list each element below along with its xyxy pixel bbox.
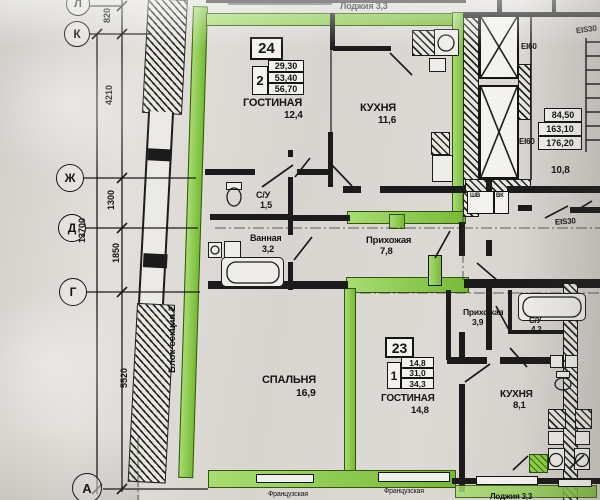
wall-block [148,148,173,161]
kitchen24-appliance [429,58,446,72]
kitchen-adj-cabinet [575,431,590,445]
axis-label: Л [74,0,82,10]
kitchen24-name: КУХНЯ [360,103,396,114]
wall-stub [497,0,502,15]
kitchen24-sink-box [434,29,459,56]
apt23-top-wall [464,279,600,288]
kitchen-bottom-wall [380,186,465,193]
shadow-overlay-bottom-left [0,430,140,500]
living23-name: ГОСТИНАЯ [381,394,435,404]
bath-block-wall [288,177,293,235]
apt23-number: 23 [392,340,408,356]
corridor-wall [486,240,492,256]
bath-block-wall [288,150,293,157]
dim-820: 820 [103,8,112,23]
kitchen23-wall-seg [459,332,465,360]
living24-right-wall [328,132,333,187]
entrance-door-24 [428,255,442,286]
wc24-area: 1,5 [260,201,272,210]
wc-bath-divider [210,214,290,220]
wc23-sink [565,355,578,368]
light-overlay-left2 [0,290,130,440]
hall24-right-wall [459,222,465,256]
kitchen24-area: 11,6 [378,116,396,126]
hall24-area: 7,8 [380,247,393,257]
bath23-left-wall [508,290,512,332]
table-value-1: 84,50 [552,110,575,120]
living23-area: 14,8 [411,406,429,416]
apt23-rooms-cell: 1 [387,362,401,389]
dimension-ticks [92,1,127,494]
kitchen24-counter-icon [412,30,436,56]
bathtub24-icon [221,257,284,287]
apt24-number-box: 24 [250,37,283,60]
kitchen23-living-wall [459,384,465,492]
table-row-2: 163,10 [538,122,582,136]
bath24-area: 3,2 [262,245,274,254]
vk-label: ВК [496,193,504,199]
kitchen24-cabinet [432,155,453,182]
room-name: Лоджия [340,1,373,11]
window-band [138,111,174,304]
block-section-label: Блок-секция 2 [168,306,178,373]
wc24-top-wall [205,169,255,175]
living24-name: ГОСТИНАЯ [243,98,302,109]
bath24-name: Ванная [250,234,281,243]
room-area: 3,3 [522,492,533,500]
elevator-shaft-1 [479,15,519,79]
lobby-area: 10,8 [551,166,570,176]
wc23-area: 4,2 [531,326,542,334]
french-window [256,474,314,483]
window [558,479,592,487]
axis-bubble-g: Г [59,278,87,306]
wall-block [143,253,168,268]
dim-4210: 4210 [105,85,114,105]
kitchen23-area: 8,1 [513,401,526,411]
elevator-shaft-2 [479,85,519,179]
kitchen23-stove-icon [548,409,566,429]
lobby-wall-seg [518,205,532,211]
wc23-name: С/У [529,317,541,325]
building-top-edge [206,0,466,3]
green-hatch-box [529,454,548,473]
apt24-area-total-cell: 53,40 [268,72,304,83]
dim-5520: 5520 [120,368,129,388]
apt24-area-full-cell: 56,70 [268,83,304,95]
axis-label: Д [68,221,77,235]
table-row-1: 84,50 [544,108,582,122]
ei60-label-2: EI60 [519,138,535,146]
axis-bubble-k: К [64,21,90,47]
kitchen-wall-stub [333,46,391,51]
hall24-name: Прихожая [366,236,411,246]
kitchen-bottom-seg [343,186,361,193]
light-overlay-left [0,30,160,180]
apt23-area-total-cell: 31,0 [401,368,434,378]
table-value-2: 163,10 [546,124,574,134]
axis-bubble-zh: Ж [56,164,84,192]
axis-bubble-l: Л [66,0,90,16]
loggia24-label: Лоджия 3,3 [340,2,388,11]
table-row-3: 176,20 [538,136,582,150]
hall24-wall [290,215,350,221]
french-window [378,472,450,482]
french-label-b: Французская [384,488,424,495]
lobby-top-wall [507,186,600,193]
kitchen-adj-sink-box [574,448,590,470]
dim-1300: 1300 [107,190,116,210]
kitchen-adj-stove-icon [575,409,592,429]
apt24-area-full: 56,70 [275,84,298,94]
kitchen23-name: КУХНЯ [500,390,533,400]
dim-1850: 1850 [112,243,121,263]
core-pillar [518,64,531,120]
axis-label: Г [70,285,77,299]
apt23-area-total: 31,0 [409,368,426,378]
eis30-label-top: EIS30 [576,25,598,36]
kitchen23-sink-box [548,448,565,470]
toilet23-tank [556,371,570,378]
wc24-name: С/У [256,191,270,200]
apt24-area-living: 29,30 [275,61,298,71]
kitchen-living-wall [330,13,335,50]
apt24-area-total: 53,40 [275,73,298,83]
green-wall-top [206,13,466,26]
room-area: 3,3 [376,1,388,11]
apt24-number: 24 [258,40,275,57]
dim-13700: 13700 [78,218,87,243]
apt23-area-living-cell: 14,8 [401,357,434,368]
lobby-wall-seg [570,207,600,213]
wc23-washer [550,355,563,368]
wall-stub [552,0,556,13]
hall23-bottom-seg [447,357,487,364]
loggia23-label: Лоджия 3,3 [490,493,532,500]
apt24-rooms: 2 [256,73,263,88]
washer24-icon [208,242,222,258]
living24-area: 12,4 [284,111,303,121]
axis-label: К [73,27,80,41]
axis-label: Ж [65,171,76,185]
room-name: Лоджия [490,492,520,500]
toilet24-tank [226,182,242,190]
axis-label: А [82,481,91,496]
window [476,476,538,485]
apt23-area-full-cell: 34,3 [401,378,434,389]
french-label-a: Французская [268,491,308,498]
axis-bubble-a: А [72,473,102,500]
wall-hatch [142,0,188,115]
bedroom24-area: 16,9 [296,388,316,399]
table-value-3: 176,20 [546,138,574,148]
green-wall-hall-top [347,211,466,224]
apt23-area-living: 14,8 [409,358,426,368]
ei60-label-1: EI60 [521,43,537,51]
bath24-sink-icon [224,241,241,258]
apt24-rooms-cell: 2 [252,66,268,95]
apt23-rooms: 1 [391,369,398,383]
shv-label: ШВ [470,193,480,199]
green-wall-stub [389,214,405,229]
hall23-name: Прихожая [463,308,503,317]
green-wall-bedroom-right [344,288,356,480]
bedroom24-name: СПАЛЬНЯ [262,375,316,386]
apt24-area-living-cell: 29,30 [268,60,304,72]
kitchen23-cabinet [548,431,564,445]
apt23-number-box: 23 [385,337,414,358]
staircase-steps [586,38,600,152]
eis30-label-mid: EIS30 [555,217,576,226]
kitchen24-stove-icon [431,132,450,155]
hall23-left-wall [446,290,451,360]
apt23-area-full: 34,3 [409,379,426,389]
floor-plan-photo: Л К Ж Д Г А 820 4210 1300 13700 1850 552… [0,0,600,500]
hall23-area: 3,9 [472,318,483,327]
